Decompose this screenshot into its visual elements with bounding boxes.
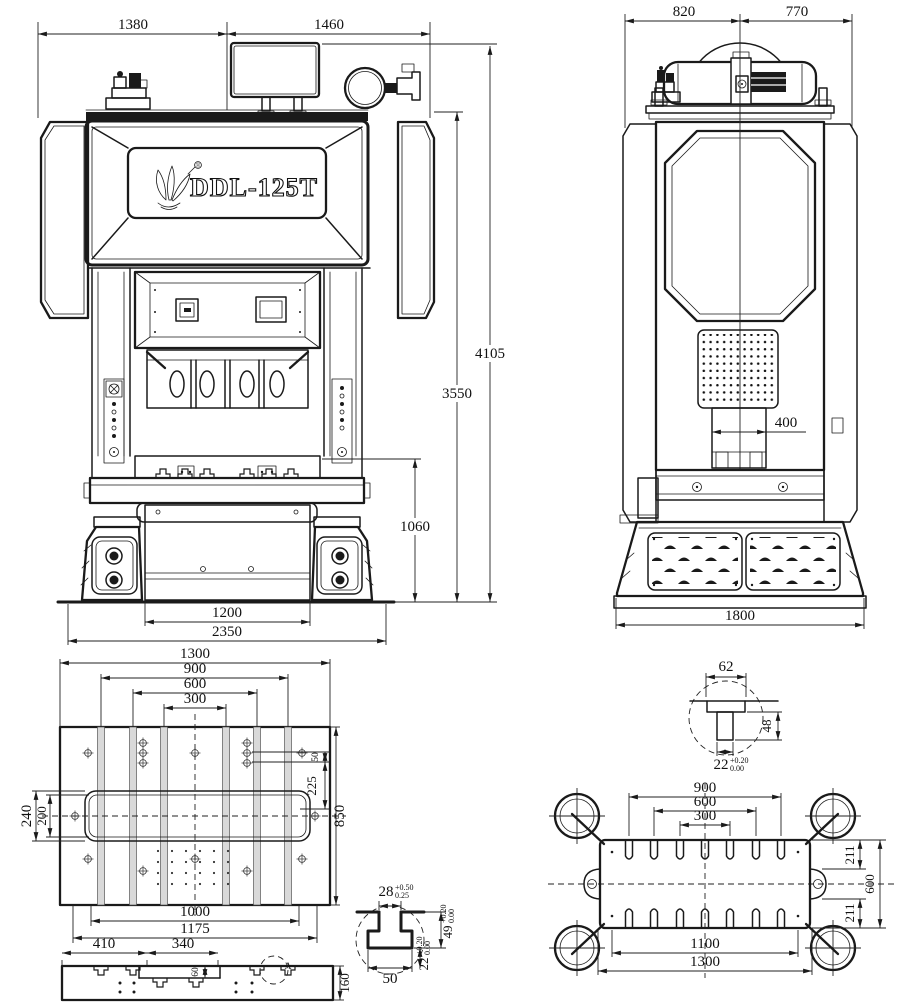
dim-front-4105: 4105 [475, 346, 505, 362]
dim-tslota-49: 49 [440, 926, 455, 939]
dim-tslota-28-tol-dn: 0.25 [395, 891, 409, 900]
top-cabinet [231, 43, 319, 115]
columns [88, 268, 370, 478]
section-dimensions: 410 340 60 160 [62, 936, 352, 1000]
side-view: 820 770 400 1800 [614, 4, 866, 629]
right-side-pod [398, 122, 434, 318]
dim-front-1380: 1380 [118, 17, 148, 33]
dim-tslot62-22: 22 [714, 757, 729, 773]
dim-tslota-50: 50 [383, 971, 398, 987]
side-slide [712, 408, 766, 468]
dim-section-60: 60 [191, 967, 201, 977]
tslot-detail-a: 28 +0.50 0.25 50 49 +0.20 0.00 22 +0.20 … [356, 883, 456, 987]
model-label: DDL-125T [190, 173, 318, 202]
bed-bracket [137, 503, 317, 600]
dim-bolster-50: 50 [311, 752, 321, 762]
left-leg [81, 517, 142, 600]
motor-unit [345, 64, 420, 108]
perforated-panel [698, 330, 778, 408]
dim-front-3550: 3550 [442, 386, 472, 402]
lubrication-pump-unit [106, 71, 150, 109]
left-control-strip [104, 379, 124, 463]
dim-tslot62-48: 48 [759, 720, 774, 733]
dim-side-1800: 1800 [725, 608, 755, 624]
dim-tslota-28: 28 [379, 884, 394, 900]
dim-bolster-240: 240 [19, 805, 35, 828]
dim-front-2350: 2350 [212, 624, 242, 640]
ram-tslot-bar [135, 456, 320, 478]
dim-bolster-225: 225 [304, 776, 319, 796]
dim-tslot62-22-tol-dn: 0.00 [730, 764, 744, 773]
dim-bolster-300: 300 [184, 691, 207, 707]
front-face-panel [135, 272, 320, 348]
dim-slide-211-top: 211 [842, 845, 857, 864]
dim-tslota-22-tol-dn: 0.00 [423, 941, 432, 955]
engineering-drawing-sheet: ® DDL-125T [0, 0, 900, 1007]
left-side-pod [41, 122, 88, 318]
dim-bolster-850: 850 [332, 805, 348, 828]
slide-assembly [147, 350, 308, 408]
dim-slide-600-side: 600 [862, 874, 877, 894]
dim-tslot62-62: 62 [719, 659, 734, 675]
front-view: ® DDL-125T [38, 17, 512, 645]
right-side-pod-inner [402, 126, 430, 314]
right-leg [312, 517, 373, 600]
dim-slide-211-bottom: 211 [842, 903, 857, 922]
dim-tslota-49-tol-dn: 0.00 [447, 909, 456, 923]
dim-section-410: 410 [93, 936, 116, 952]
dim-side-400: 400 [775, 415, 798, 431]
dim-slide-1100: 1100 [690, 936, 719, 952]
dim-bolster-1300: 1300 [180, 646, 210, 662]
dim-side-820: 820 [673, 4, 696, 20]
dim-tslota-22-group: 22 +0.20 0.00 [415, 936, 432, 970]
dim-bolster-1000: 1000 [180, 904, 210, 920]
dim-slide-1300: 1300 [690, 954, 720, 970]
bolster-plan-view: 1300 900 600 300 240 200 50 225 850 1000… [19, 646, 348, 943]
dim-front-1060: 1060 [400, 519, 430, 535]
side-base [614, 522, 866, 608]
bolster-dimensions: 1300 900 600 300 240 200 50 225 850 1000… [19, 646, 348, 943]
bolster-section-view: A 410 340 60 160 [62, 936, 352, 1000]
dim-bolster-600: 600 [184, 676, 207, 692]
side-right-cover [824, 124, 857, 522]
cover-latch [832, 418, 843, 433]
detail-a-circle [356, 906, 424, 974]
dim-bolster-900: 900 [184, 661, 207, 677]
dim-slide-300: 300 [694, 808, 717, 824]
dim-side-770: 770 [786, 4, 809, 20]
detail-circle [689, 681, 763, 755]
side-left-cover [623, 124, 656, 522]
tslot-detail-62: 62 48 22 +0.20 0.00 [689, 659, 782, 773]
left-side-pod-inner [45, 126, 84, 314]
tslot-a-profile [357, 912, 424, 948]
bolster-table [84, 478, 370, 503]
slide-plan-view: 900 600 300 211 211 600 1100 1300 [548, 780, 895, 978]
dim-front-1200: 1200 [212, 605, 242, 621]
dim-bolster-200: 200 [34, 806, 49, 826]
front-dimensions: 1380 1460 4105 3550 1060 1200 2350 [38, 17, 512, 645]
dim-tslota-49-group: 49 +0.20 0.00 [439, 904, 456, 938]
dim-tslota-22: 22 [416, 958, 431, 971]
brand-logo: ® DDL-125T [156, 162, 318, 210]
dim-bolster-1175: 1175 [180, 921, 209, 937]
slide-dimensions: 900 600 300 211 211 600 1100 1300 [598, 780, 886, 975]
dim-section-340: 340 [172, 936, 195, 952]
dim-front-1460: 1460 [314, 17, 344, 33]
registered-mark: ® [196, 163, 201, 170]
bolt-hole-grid [150, 846, 230, 890]
dim-section-160: 160 [337, 973, 352, 993]
detail-a-callout-label: A [285, 962, 292, 972]
bolt-rail [620, 470, 824, 523]
right-control-strip [332, 379, 352, 463]
press-drawing-svg: ® DDL-125T [0, 0, 900, 1007]
